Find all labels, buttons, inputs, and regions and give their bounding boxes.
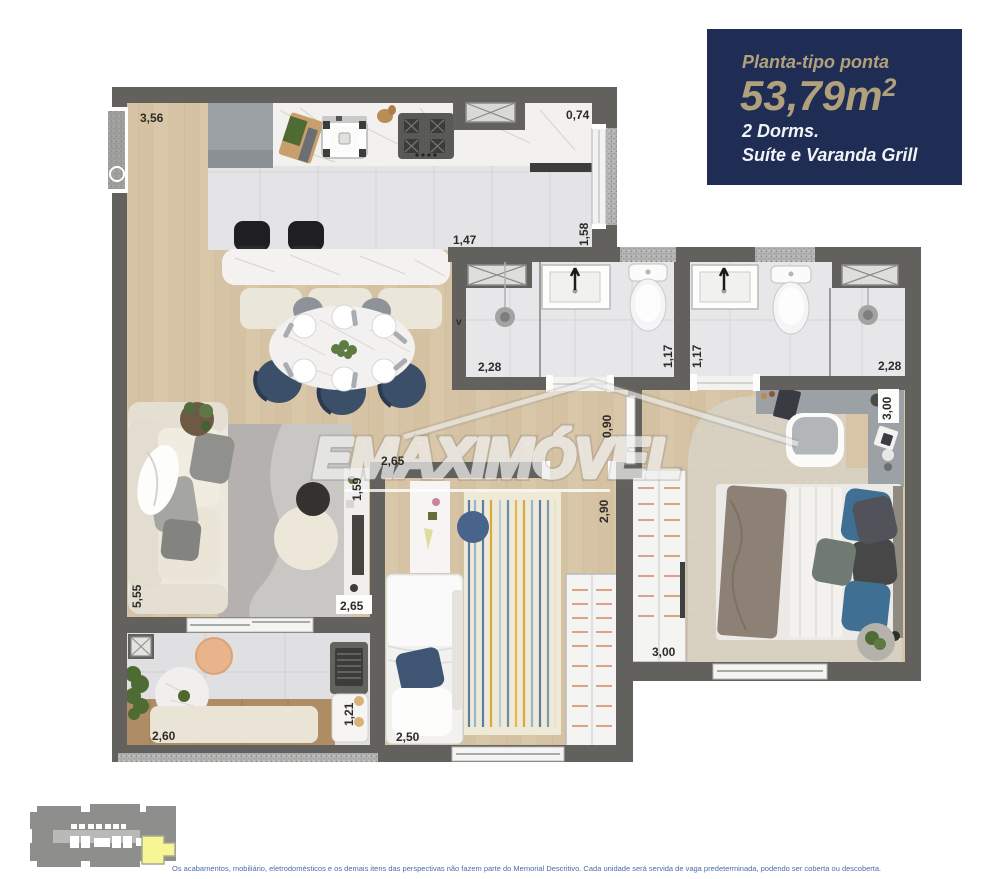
svg-text:1,47: 1,47 (453, 233, 477, 247)
svg-text:Os acabamentos, mobiliário, el: Os acabamentos, mobiliário, eletrodomést… (172, 864, 881, 873)
svg-text:2,28: 2,28 (478, 360, 502, 374)
svg-text:v: v (456, 317, 462, 328)
svg-text:Suíte e Varanda Grill: Suíte e Varanda Grill (742, 145, 918, 165)
svg-text:2,60: 2,60 (152, 729, 176, 743)
svg-text:3,00: 3,00 (652, 645, 676, 659)
svg-text:1,21: 1,21 (342, 702, 356, 726)
svg-text:2,50: 2,50 (396, 730, 420, 744)
svg-text:1,17: 1,17 (690, 344, 704, 368)
svg-text:3,56: 3,56 (140, 111, 164, 125)
svg-text:2,65: 2,65 (340, 599, 364, 613)
svg-text:2,90: 2,90 (597, 499, 611, 523)
svg-text:2 Dorms.: 2 Dorms. (741, 121, 819, 141)
svg-text:2,65: 2,65 (381, 454, 405, 468)
svg-text:1,17: 1,17 (661, 344, 675, 368)
svg-text:EMAXIMÓVEL: EMAXIMÓVEL (314, 426, 680, 489)
svg-text:Planta-tipo ponta: Planta-tipo ponta (742, 52, 889, 72)
svg-text:0,90: 0,90 (600, 414, 614, 438)
svg-text:1,59: 1,59 (350, 477, 364, 501)
svg-text:5,55: 5,55 (130, 584, 144, 608)
svg-text:3,00: 3,00 (880, 396, 894, 420)
svg-text:2,28: 2,28 (878, 359, 902, 373)
svg-text:1,58: 1,58 (577, 222, 591, 246)
svg-text:0,74: 0,74 (566, 108, 590, 122)
svg-text:53,79m2: 53,79m2 (740, 72, 896, 119)
